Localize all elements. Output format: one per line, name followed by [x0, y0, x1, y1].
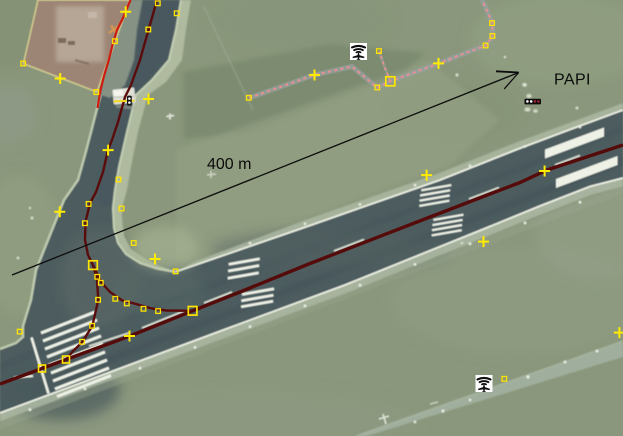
svg-text:PAPI: PAPI [554, 72, 591, 89]
svg-text:400 m: 400 m [207, 156, 251, 173]
